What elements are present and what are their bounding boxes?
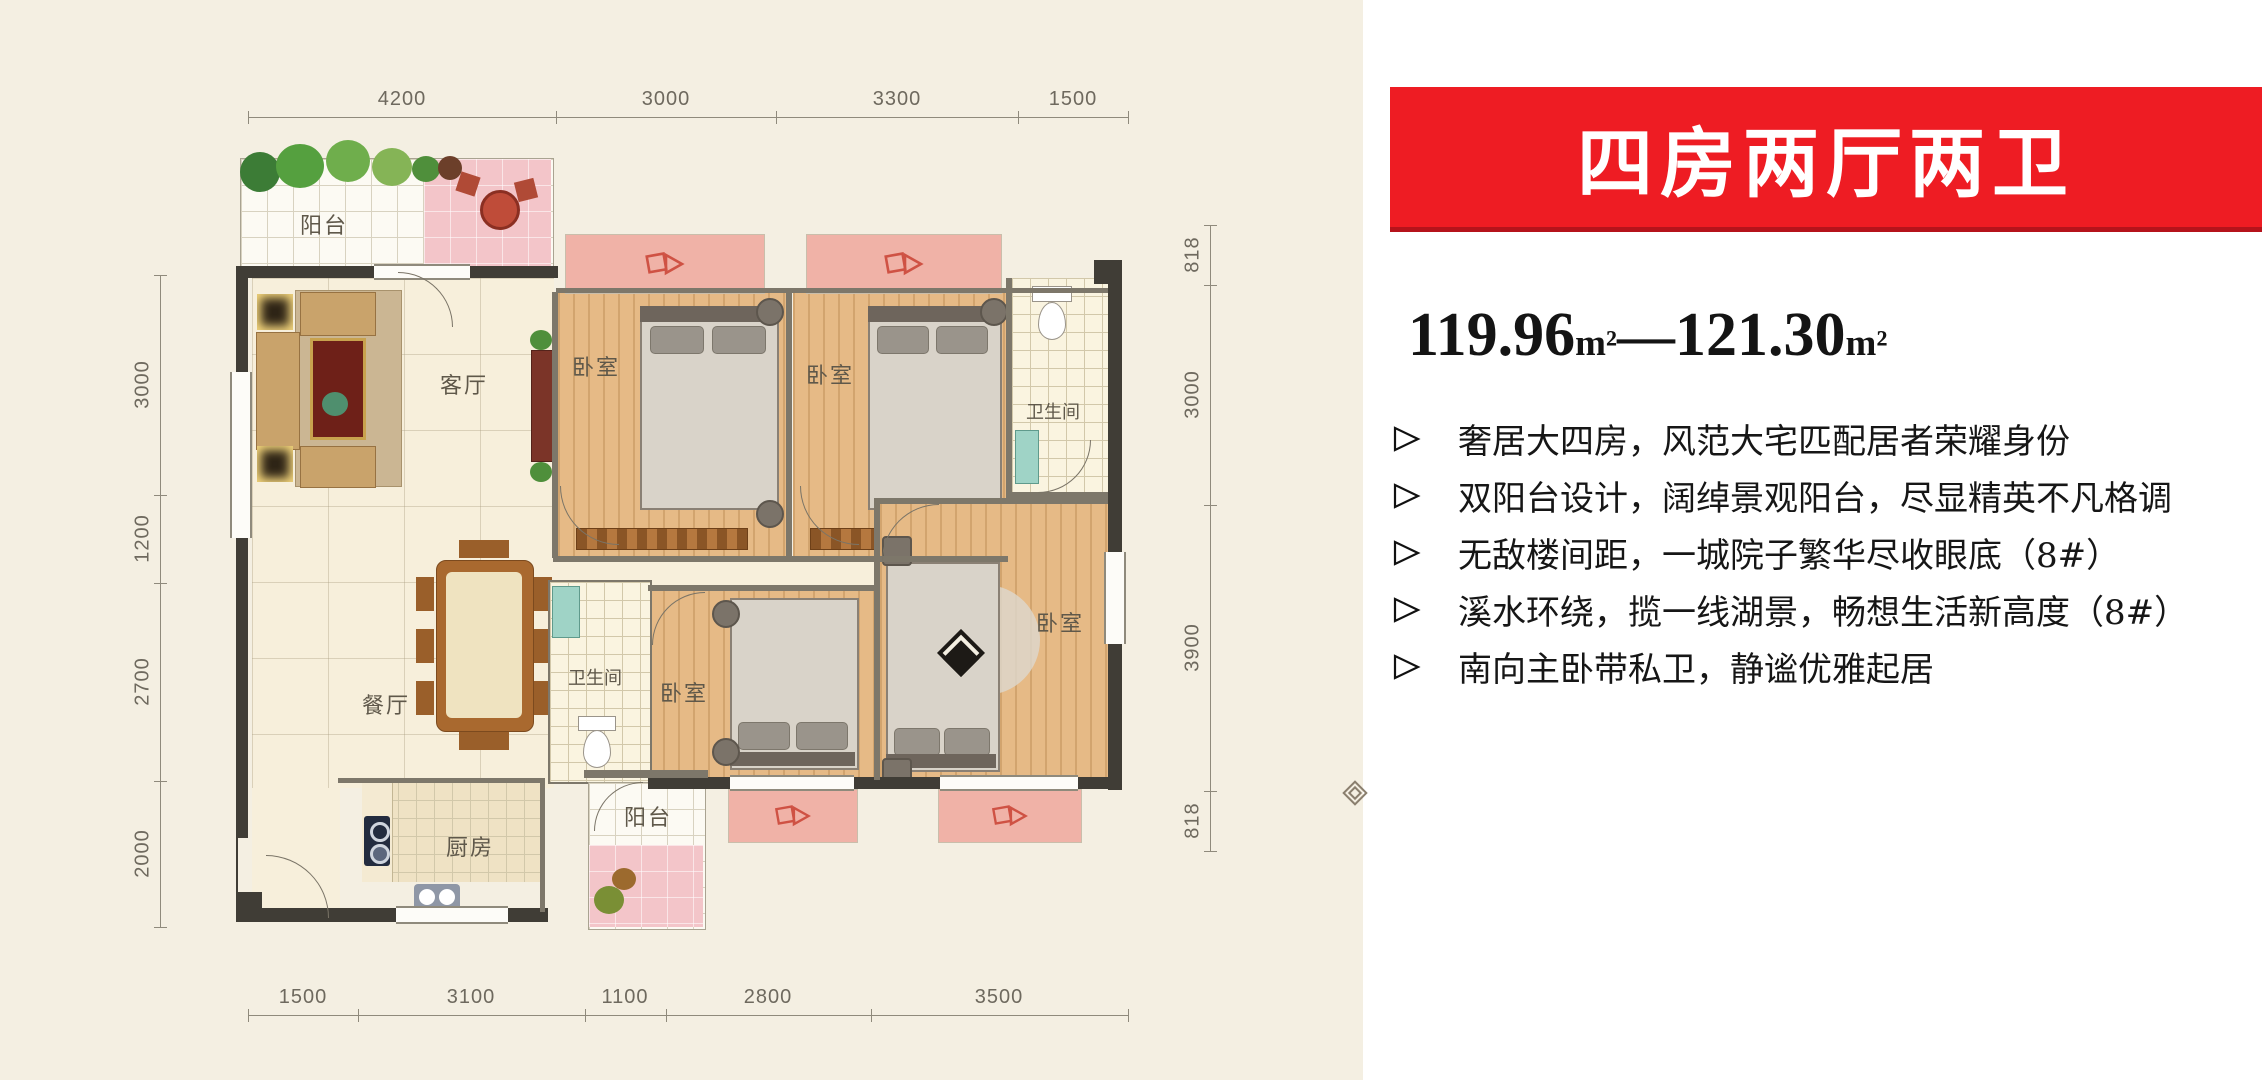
dim-label-bottom-2: 3100 [429,986,513,1009]
dim-tick [1204,791,1217,792]
corner-lamp-icon [257,446,293,482]
dim-tick [154,927,167,928]
dim-tick [154,275,167,276]
sofa-left [256,332,300,450]
toilet-icon [1038,302,1066,340]
dim-label-left-3: 2700 [132,640,155,724]
wall-interior [874,498,1108,504]
dim-line-bottom [248,1015,1128,1016]
tree-icon [276,144,324,188]
wall-interior [786,292,792,558]
tree-icon [372,148,412,186]
bed-headboard [640,306,775,322]
patio-table-icon [480,190,520,230]
dim-label-top-2: 3000 [624,88,708,111]
room-label-bathroom-2: 卫生间 [568,664,622,690]
living-red-carpet [310,338,366,440]
nightstand-icon [756,298,784,326]
bed-headboard [868,306,998,322]
tree-icon [240,152,280,192]
bullet-arrow-icon [1392,653,1422,681]
bay-window [806,234,1002,294]
dim-tick [154,495,167,496]
pillow-icon [796,722,848,750]
stove-burner-icon [370,844,390,864]
feature-text: 奢居大四房，风范大宅匹配居者荣耀身份 [1458,414,2070,463]
bullet-arrow-icon [1392,482,1422,510]
bullet-arrow-icon [1392,425,1422,453]
dim-tick [248,111,249,124]
wall-interior [648,585,875,591]
headline-title: 四房两厅两卫 [1577,102,2075,212]
wall-interior [553,556,1008,562]
bullet-arrow-icon [1392,596,1422,624]
window [940,775,1078,791]
sofa-top [300,292,376,336]
tree-icon [412,156,440,182]
dim-tick [1128,111,1129,124]
bay-window [938,789,1082,843]
wall-corner [1094,260,1122,284]
dim-tick [1204,851,1217,852]
bullet-arrow-icon [1392,539,1422,567]
window-arrow-icon [989,801,1031,831]
dim-tick [871,1009,872,1022]
bay-window [565,234,765,294]
wall-interior [874,500,880,780]
dim-label-top-3: 3300 [855,88,939,111]
pillow-icon [877,326,929,354]
dim-tick [154,781,167,782]
feature-item: 溪水环绕，揽一线湖景，畅想生活新高度（8#） [1392,581,2252,638]
plant-icon [594,886,624,914]
dim-label-right-3: 3900 [1182,606,1205,690]
window-arrow-icon [772,801,814,831]
feature-item: 奢居大四房，风范大宅匹配居者荣耀身份 [1392,410,2252,467]
toilet-icon [578,716,616,731]
nightstand-icon [980,298,1008,326]
area-max: 121.30 [1675,301,1846,369]
room-label-bedroom-3: 卧室 [660,676,708,708]
dining-chair-icon [416,629,434,663]
pillow-icon [650,326,704,354]
window [396,906,508,924]
pillow-icon [936,326,988,354]
toilet-icon [583,730,611,768]
sink-bowl-icon [439,889,455,905]
dining-chair-icon [459,540,509,558]
pillow-icon [894,728,940,756]
dim-label-left-1: 3000 [132,343,155,427]
wall-interior [540,778,545,912]
dim-tick [1128,1009,1129,1022]
room-label-bedroom-2: 卧室 [806,358,854,390]
bay-window [728,789,858,843]
dim-tick [585,1009,586,1022]
sofa-bottom [300,446,376,488]
area-unit: m² [1575,323,1617,364]
dim-line-right [1210,225,1211,851]
dim-label-left-2: 1200 [132,497,155,581]
stove-burner-icon [370,822,390,842]
feature-text: 双阳台设计，阔绰景观阳台，尽显精英不凡格调 [1458,471,2172,520]
bathroom-basin-icon [552,586,580,638]
dim-label-right-1: 818 [1182,213,1205,297]
dim-label-right-2: 3000 [1182,353,1205,437]
area-min: 119.96 [1408,301,1575,369]
window [230,372,252,538]
dining-chair-icon [416,681,434,715]
room-label-balcony-top: 阳台 [300,208,348,240]
window [1104,552,1126,644]
bathroom-shelf-icon [1015,430,1039,484]
headline-banner: 四房两厅两卫 [1390,87,2262,232]
nightstand-icon [756,500,784,528]
dim-line-left [160,275,161,927]
dim-label-bottom-1: 1500 [261,986,345,1009]
dim-tick [556,111,557,124]
pillow-icon [944,728,990,756]
compass-icon [1338,776,1372,810]
dim-tick [776,111,777,124]
dim-label-left-4: 2000 [132,812,155,896]
feature-list: 奢居大四房，风范大宅匹配居者荣耀身份 双阳台设计，阔绰景观阳台，尽显精英不凡格调… [1392,410,2252,695]
wall-right [1108,260,1122,790]
window [730,775,854,791]
plant-icon [530,330,552,350]
dim-label-top-4: 1500 [1031,88,1115,111]
dim-tick [1018,111,1019,124]
room-label-bedroom-1: 卧室 [572,350,620,382]
feature-item: 双阳台设计，阔绰景观阳台，尽显精英不凡格调 [1392,467,2252,524]
dim-tick [666,1009,667,1022]
area-range: 119.96m²—121.30m² [1408,300,1887,371]
dim-tick [248,1009,249,1022]
dim-tick [1204,225,1217,226]
dim-label-bottom-4: 2800 [726,986,810,1009]
wall-interior [584,770,708,778]
wall-interior [1006,278,1012,498]
shrub-icon [438,156,462,180]
feature-item: 无敌楼间距，一城院子繁华尽收眼底（8#） [1392,524,2252,581]
area-separator: — [1617,303,1675,368]
bed-headboard [730,752,855,766]
dim-label-bottom-3: 1100 [583,986,667,1009]
window-arrow-icon [881,248,927,280]
dim-tick [1204,285,1217,286]
feature-text: 南向主卧带私卫，静谧优雅起居 [1458,642,1934,691]
tree-icon [326,140,370,182]
dim-tick [154,583,167,584]
wall-corner [236,892,262,922]
plant-icon [612,868,636,890]
dining-chair-icon [459,732,509,750]
dim-line-top [248,117,1128,118]
room-label-living: 客厅 [440,368,488,400]
floorplan-background: 4200 3000 3300 1500 1500 3100 1100 2800 … [0,0,1363,1080]
coffee-table-flowers-icon [322,392,348,416]
pillow-icon [712,326,766,354]
dining-chair-icon [416,577,434,611]
dining-table-top [446,572,522,718]
dim-label-bottom-5: 3500 [957,986,1041,1009]
room-label-kitchen: 厨房 [446,830,494,862]
wall-left [236,266,248,922]
feature-text: 溪水环绕，揽一线湖景，畅想生活新高度（8#） [1458,585,2188,634]
dim-tick [1204,505,1217,506]
room-label-bathroom-1: 卫生间 [1026,398,1080,424]
feature-item: 南向主卧带私卫，静谧优雅起居 [1392,638,2252,695]
corner-lamp-icon [257,294,293,330]
tv-console [531,350,553,462]
plant-icon [530,462,552,482]
nightstand-icon [712,738,740,766]
room-label-dining: 餐厅 [362,688,410,720]
area-unit: m² [1846,323,1888,364]
wall-top-bedrooms [556,288,1108,293]
wall-interior [552,292,558,558]
feature-text: 无敌楼间距，一城院子繁华尽收眼底（8#） [1458,528,2120,577]
window-arrow-icon [642,248,688,280]
pillow-icon [738,722,790,750]
dim-label-top-1: 4200 [360,88,444,111]
room-label-master-bedroom: 卧室 [1036,606,1084,638]
dim-tick [358,1009,359,1022]
wall-interior [338,778,544,783]
nightstand-icon [712,600,740,628]
dim-label-right-4: 818 [1182,779,1205,863]
floorplan-marketing-slide: 4200 3000 3300 1500 1500 3100 1100 2800 … [0,0,2262,1080]
sink-bowl-icon [419,889,435,905]
